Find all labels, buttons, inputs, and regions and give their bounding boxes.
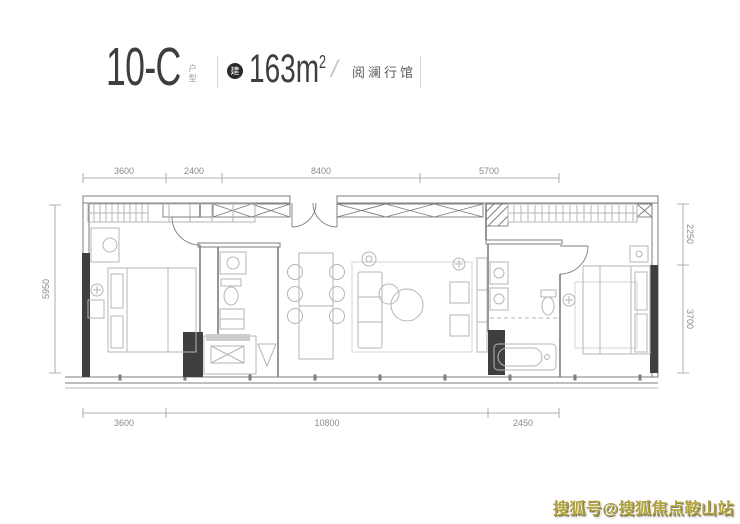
dim-right-2: 3700 [685, 309, 695, 329]
dining-furniture [288, 253, 345, 359]
dim-top-1: 3600 [114, 166, 134, 176]
bedroom-left-furniture [88, 228, 196, 352]
living-room-furniture [352, 252, 487, 352]
dim-top-3: 8400 [311, 166, 331, 176]
bottom-window-band [65, 375, 658, 389]
wardrobes [88, 204, 637, 222]
dim-bottom-1: 3600 [114, 418, 134, 428]
dim-left-1: 5950 [41, 279, 51, 299]
structural-strips [163, 204, 652, 226]
dim-right-1: 2250 [685, 224, 695, 244]
dim-bottom-3: 2450 [513, 418, 533, 428]
doors [172, 203, 588, 274]
outer-walls [83, 196, 658, 377]
floor-plan-drawing: 3600 2400 8400 5700 3600 10800 2450 2250… [0, 0, 740, 524]
watermark: 搜狐号@搜狐焦点鞍山站 [553, 495, 734, 519]
master-bedroom-furniture [563, 246, 650, 354]
dim-top-2: 2400 [184, 166, 204, 176]
dim-top-4: 5700 [479, 166, 499, 176]
service-core-fixtures [204, 252, 276, 374]
dim-bottom-2: 10800 [314, 418, 339, 428]
